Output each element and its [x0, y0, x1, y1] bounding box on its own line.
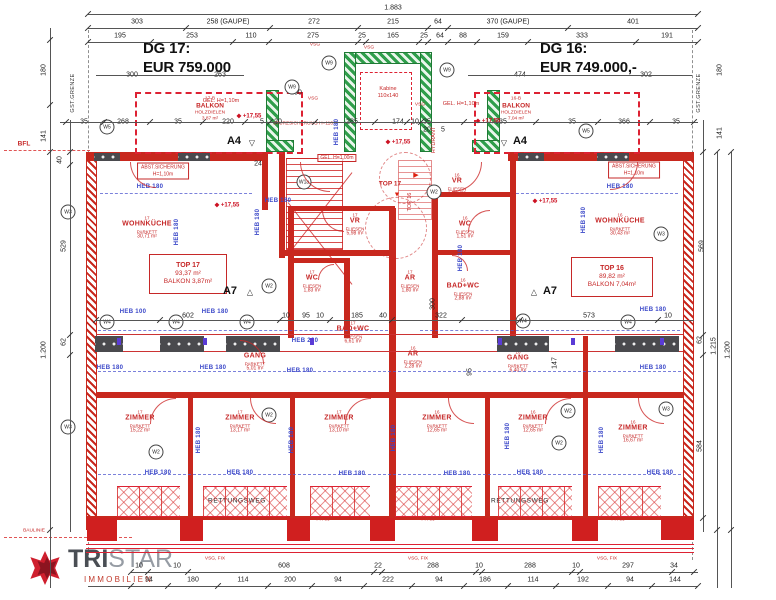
beam-label: HEB 180	[145, 470, 171, 476]
room-label-line: 2,88 m²	[447, 296, 480, 302]
room-label-line: BAD+WC	[447, 283, 480, 291]
beam-label: HEB 180	[640, 307, 666, 313]
window-sill-block	[518, 153, 544, 161]
beam-label: HEB 180	[581, 207, 587, 233]
room-label-badwc: 16BAD+WCFLIESEN2,88 m²	[447, 278, 480, 303]
room-label-line: ZIMMER	[518, 415, 547, 423]
dimension-tick	[695, 11, 701, 17]
facade-edge-line	[86, 544, 694, 545]
dimension-label: 186	[479, 577, 491, 584]
dimension-label-vertical: 529	[61, 240, 68, 252]
annotation-text: BALKON	[196, 103, 224, 110]
door-swing-arc	[150, 398, 176, 424]
balcony-railing	[203, 486, 287, 517]
annotation-text: PH 86	[517, 517, 530, 522]
beam-dashed-line	[100, 193, 252, 194]
beam-label: HEB 180	[255, 209, 261, 235]
dimension-label: 88	[459, 33, 467, 40]
annotation-text: GEL. H=1,10m	[443, 101, 480, 107]
exterior-wall-right	[683, 152, 694, 530]
beam-label: HEB 220	[292, 338, 318, 344]
dimension-label: 288	[427, 563, 439, 570]
dimension-label: 10	[173, 563, 181, 570]
bfl-line	[4, 150, 90, 151]
beam-dashed-line	[516, 193, 678, 194]
annotation-text: VSG, FIX	[408, 557, 428, 562]
beam-label: HEB 180	[599, 427, 605, 453]
dimension-label: 110	[245, 33, 256, 40]
dimension-line	[468, 75, 692, 76]
annotation-text: HYDRANT	[431, 127, 437, 154]
dimension-line-vertical	[50, 28, 51, 588]
annotation-text: PH 86	[316, 518, 329, 523]
room-label-line: 6,61 m²	[337, 339, 370, 345]
window-marker-w3: W3	[61, 205, 76, 220]
dimension-label: 24	[254, 161, 262, 168]
facade-pier	[472, 518, 498, 541]
wall-wc17-top	[288, 258, 350, 263]
balcony-railing	[498, 486, 572, 517]
dimension-label: 114	[527, 577, 538, 584]
annotation-text: PH 86	[421, 518, 434, 523]
dimension-line-vertical	[731, 152, 732, 588]
beam-dashed-line	[98, 371, 681, 372]
elevator-shaft-wall-top	[344, 52, 432, 64]
annotation-text: PH 86	[128, 517, 141, 522]
annotation-text: 16-B	[511, 97, 521, 102]
dimension-label: 94	[626, 577, 634, 584]
annotation-text: PH 86	[611, 518, 624, 523]
room-label-line: 2,28 m²	[404, 364, 423, 370]
room-label-line: ZIMMER	[225, 415, 254, 423]
dimension-line	[60, 122, 698, 123]
dimension-line	[96, 320, 694, 321]
room-label-line: 12,65 m²	[518, 428, 547, 434]
room-label-line: VR	[346, 218, 365, 226]
facade-pier	[180, 518, 203, 541]
unit-summary-box: TOP 1689,82 m²BALKON 7,04m²	[571, 257, 653, 297]
unit-summary-line: BALKON 3,87m²	[164, 278, 212, 286]
room-label-line: 13,10 m²	[324, 428, 353, 434]
turning-circle	[365, 197, 427, 259]
dimension-line-vertical	[717, 152, 718, 588]
dimension-label: 573	[583, 313, 595, 320]
wall-zimmer-divider-3	[485, 398, 490, 518]
window-marker-w9: W9	[322, 56, 337, 71]
unit-summary-line: TOP 16	[600, 265, 624, 274]
annotation-text: Kabine	[379, 86, 396, 92]
dimension-line	[96, 75, 244, 76]
dimension-label: 114	[237, 577, 248, 584]
dimension-label: 322	[435, 313, 447, 320]
balcony-railing	[117, 486, 180, 517]
dimension-label: 191	[661, 33, 673, 40]
turning-circle	[379, 152, 431, 204]
annotation-text: VSG	[415, 103, 425, 108]
annotation-text: △	[247, 288, 253, 297]
beam-dashed-line	[420, 330, 680, 331]
window-marker-w5: W5	[579, 124, 594, 139]
dimension-label-vertical: 141	[41, 130, 48, 142]
dimension-label-vertical: 569	[699, 240, 706, 252]
window-sill-block	[94, 153, 120, 161]
dimension-label: 608	[278, 563, 290, 570]
logo-word-bold: TRI	[68, 545, 108, 573]
wall-zimmer-divider-4	[583, 336, 588, 518]
window-sill-block	[160, 336, 204, 352]
room-label-line: 13,17 m²	[225, 428, 254, 434]
room-label-zimmer: 16ZIMMERPARKETT16,67 m²	[618, 420, 647, 445]
wall-entry16	[510, 152, 516, 338]
dimension-label: 215	[387, 19, 399, 26]
dimension-label: 258 (GAUPE)	[207, 19, 250, 26]
room-label-zimmer: 16ZIMMERPARKETT12,65 m²	[518, 410, 547, 435]
room-label-vr: 17VRFLIESEN5,98 m²	[346, 213, 365, 238]
dimension-label: 401	[627, 19, 639, 26]
level-marker: ◆ +17,55	[533, 198, 558, 205]
room-label-line: 15,22 m²	[125, 428, 154, 434]
annotation-text: BALKON	[502, 103, 530, 110]
dimension-label-vertical: 147	[552, 357, 559, 369]
dimension-label: 20	[423, 127, 431, 134]
room-label-line: 1,80 m²	[401, 288, 420, 294]
annotation-text: △	[531, 288, 537, 297]
level-marker: ◆ +17,55	[215, 202, 240, 209]
annotation-text: 110x140	[378, 93, 399, 99]
wall-gang17-bottom	[96, 392, 389, 398]
window-marker-w3: W3	[61, 420, 76, 435]
dimension-label: 192	[577, 577, 589, 584]
window-sill-block	[497, 336, 549, 352]
dimension-label: 275	[307, 33, 319, 40]
dimension-label: 602	[182, 313, 194, 320]
dimension-label: 10	[316, 313, 324, 320]
room-label-line: 5,31 m²	[448, 191, 467, 197]
annotation-text: A4	[227, 135, 241, 147]
annotation-text: VSG	[364, 46, 374, 51]
dimension-label-vertical: 300	[430, 298, 437, 310]
window-marker-w2: W2	[262, 279, 277, 294]
dimension-line	[88, 28, 698, 29]
dimension-label: 222	[382, 577, 394, 584]
dimension-line	[88, 42, 698, 43]
unit-summary-line: BALKON 7,04m²	[588, 281, 636, 289]
facade-edge-line	[86, 548, 694, 549]
dimension-label: 297	[622, 563, 634, 570]
beam-label: HEB 180	[196, 427, 202, 453]
facade-pier	[370, 518, 395, 541]
beam-dashed-line	[98, 474, 681, 475]
dimension-label: 185	[351, 313, 363, 320]
dimension-label: 272	[308, 19, 320, 26]
dimension-label: 94	[145, 577, 153, 584]
door-swing-arc	[448, 398, 474, 424]
room-label-zimmer: 17ZIMMERPARKETT13,17 m²	[225, 410, 254, 435]
dimension-label: 253	[186, 33, 198, 40]
elevator-shaft-wall-left	[344, 52, 356, 152]
wall-zimmer-divider-2	[290, 398, 295, 518]
level-marker: ◆ +17,55	[476, 118, 501, 125]
room-label-line: 12,65 m²	[422, 428, 451, 434]
logo-wordmark: TRISTAR	[68, 547, 173, 572]
room-label-line: WOHNKÜCHE	[122, 221, 172, 229]
beam-label: HEB 180	[289, 427, 295, 453]
door-swing-arc	[452, 162, 482, 192]
dimension-label-vertical: 40	[57, 156, 64, 164]
room-label-line: 1,83 m²	[303, 288, 322, 294]
dimension-label: 180	[187, 577, 199, 584]
window-sill-block	[597, 153, 629, 161]
dimension-label: 333	[576, 33, 588, 40]
annotation-text: VSG	[310, 43, 320, 48]
dimension-label: 10	[135, 563, 143, 570]
dimension-line	[88, 14, 698, 15]
beam-label: HEB 180	[517, 470, 543, 476]
price-dg16: DG 16: EUR 749.000,-	[540, 40, 637, 78]
wall-vr16-bottom	[432, 192, 516, 197]
door-post-marker	[117, 338, 121, 345]
dimension-label: 10	[664, 313, 672, 320]
facade-pier	[87, 518, 117, 541]
room-label-line: ZIMMER	[618, 425, 647, 433]
dimension-label-vertical: 141	[717, 127, 724, 139]
door-swing-arc	[345, 398, 371, 424]
door-post-marker	[498, 338, 502, 345]
room-label-line: 5,98 m²	[346, 231, 365, 237]
annotation-text: A7	[543, 285, 557, 297]
floor-plan: DG 17: EUR 759.000 DG 16: EUR 749.000,- …	[0, 0, 776, 600]
facade-pier	[572, 518, 598, 541]
room-label-wohnkche: 17WOHNKÜCHEPARKETT30,71 m²	[122, 216, 172, 241]
dimension-label: 165	[387, 33, 399, 40]
window-marker-w4: W4	[240, 315, 255, 330]
facade-pier	[287, 518, 310, 541]
dimension-line-vertical	[70, 120, 71, 532]
room-label-badwc: 17BAD+WCFLIESEN6,61 m²	[337, 321, 370, 346]
unit-summary-line: TOP 17	[176, 262, 200, 271]
window-marker-w9: W9	[285, 80, 300, 95]
level-marker: ◆ +17,55	[237, 113, 262, 120]
dimension-label: 1.883	[384, 5, 402, 12]
annotation-text: GST.GRENZE	[70, 73, 76, 112]
window-marker-w9: W9	[440, 63, 455, 78]
annotation-text: HOLZDIELEN	[195, 111, 225, 116]
dimension-label: 370 (GAUPE)	[487, 19, 530, 26]
room-label-ar: 16ARFLIESEN2,28 m²	[404, 346, 423, 371]
window-sill-block	[178, 153, 210, 161]
dimension-label: 40	[379, 313, 387, 320]
door-swing-arc	[452, 255, 468, 271]
dimension-label: 10	[282, 313, 290, 320]
room-label-line: AR	[401, 275, 420, 283]
window-marker-w3: W3	[654, 227, 669, 242]
annotation-text: VSG, FIX	[597, 557, 617, 562]
beam-label: HEB 100	[120, 309, 146, 315]
annotation-text: HOLZDIELEN	[501, 111, 531, 116]
annotation-text: ▽	[249, 139, 255, 148]
beam-label: HEB 180	[391, 425, 397, 451]
annotation-text: BAULINIE	[23, 529, 45, 534]
door-post-marker	[203, 338, 207, 345]
balcony-railing	[310, 486, 370, 517]
facade-edge-line	[86, 552, 694, 553]
dimension-label-vertical: 62	[61, 338, 68, 346]
annotation-text: 7,04 m²	[508, 117, 524, 122]
dimension-label-vertical: 180	[41, 64, 48, 76]
room-label-line: ZIMMER	[422, 415, 451, 423]
window-marker-w2: W2	[149, 445, 164, 460]
dimension-label: 64	[436, 33, 444, 40]
beam-label: HEB 180	[647, 470, 673, 476]
door-swing-arc	[545, 398, 571, 424]
level-marker: ◆ +17,55	[386, 139, 411, 146]
annotation-text: GST.GRENZE	[696, 73, 702, 112]
dimension-label: 303	[131, 19, 143, 26]
annotation-text: 17-B	[205, 97, 215, 102]
room-label-line: 1,51 m²	[456, 234, 475, 240]
room-label-wohnkche: 16WOHNKÜCHEPARKETT30,43 m²	[595, 213, 645, 238]
dimension-tick	[695, 25, 701, 31]
window-marker-w4: W4	[621, 315, 636, 330]
door-swing-arc	[610, 162, 638, 190]
room-label-ar: 17ARFLIESEN1,80 m²	[401, 270, 420, 295]
dimension-line-vertical	[703, 120, 704, 532]
door-post-marker	[571, 338, 575, 345]
facade-pier	[661, 518, 694, 540]
dimension-label: 195	[114, 33, 126, 40]
annotation-text: ▽	[501, 139, 507, 148]
beam-label: HEB 180	[227, 470, 253, 476]
window-marker-w4: W4	[100, 315, 115, 330]
unit-summary-line: 93,37 m²	[175, 270, 201, 278]
logo-subtitle: IMMOBILIEN	[84, 575, 153, 584]
dimension-label-vertical: 1.200	[41, 341, 48, 359]
balcony-railing	[598, 486, 661, 517]
beam-label: HEB 180	[174, 219, 180, 245]
window-sill-block	[615, 336, 679, 352]
window-marker-w2: W2	[552, 436, 567, 451]
annotation-text: GEL. H=1,00m	[317, 154, 356, 162]
annotation-text: A7	[223, 285, 237, 297]
beam-label: HEB 180	[202, 309, 228, 315]
dimension-label: 144	[669, 577, 681, 584]
door-swing-arc	[130, 162, 156, 188]
door-post-marker	[660, 338, 664, 345]
dimension-label: 94	[435, 577, 443, 584]
annotation-text: VSG, FIX	[205, 557, 225, 562]
window-marker-w4: W4	[169, 315, 184, 330]
door-swing-arc	[468, 210, 490, 232]
dimension-label: 5	[441, 127, 445, 134]
unit-summary-box: TOP 1793,37 m²BALKON 3,87m²	[149, 254, 227, 294]
dimension-label: 200	[284, 577, 296, 584]
beam-label: HEB 180	[505, 423, 511, 449]
room-label-zimmer: 16ZIMMERPARKETT12,65 m²	[422, 410, 451, 435]
annotation-text: BFL	[18, 141, 31, 148]
room-label-line: WOHNKÜCHE	[595, 218, 645, 226]
dimension-line	[131, 572, 698, 573]
room-label-line: 30,43 m²	[595, 231, 645, 237]
unit-summary-line: 89,82 m²	[599, 273, 625, 281]
dimension-label: 64	[434, 19, 442, 26]
room-label-line: GANG	[507, 355, 529, 363]
dimension-label: 159	[497, 33, 509, 40]
annotation-text: PH 86	[220, 517, 233, 522]
dimension-label: 94	[334, 577, 342, 584]
dimension-label: 95	[302, 313, 310, 320]
annotation-text: A4	[513, 135, 527, 147]
room-label-line: AR	[404, 351, 423, 359]
dimension-label: 288	[524, 563, 536, 570]
dimension-label-vertical: 95	[467, 368, 474, 376]
beam-dashed-line	[98, 330, 388, 331]
room-label-line: 16,67 m²	[618, 438, 647, 444]
door-post-marker	[310, 338, 314, 345]
room-label-line: 30,71 m²	[122, 234, 172, 240]
dimension-label-vertical: 180	[717, 64, 724, 76]
balcony-railing	[395, 486, 472, 517]
door-swing-arc	[318, 264, 334, 280]
wall-wc16-bottom	[432, 250, 516, 255]
stairwell-wall-left	[279, 152, 285, 258]
dimension-tick	[695, 583, 701, 589]
annotation-text: VSG	[308, 97, 318, 102]
wall-zimmer-divider-1	[188, 398, 193, 518]
dimension-tick	[695, 39, 701, 45]
